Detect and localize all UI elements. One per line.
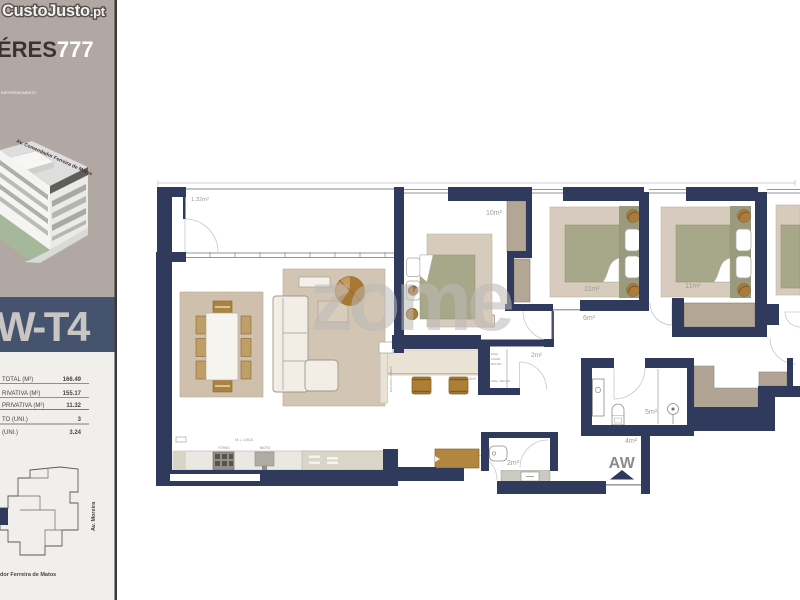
- svg-text:FORNO: FORNO: [218, 446, 230, 450]
- svg-text:155.17: 155.17: [63, 391, 82, 397]
- svg-text:TO (UNI.): TO (UNI.): [2, 417, 28, 423]
- svg-text:11m²: 11m²: [584, 286, 600, 293]
- svg-text:(UNI.): (UNI.): [2, 430, 18, 436]
- svg-text:M. L. LOIÇA: M. L. LOIÇA: [235, 438, 253, 442]
- svg-text:3m²: 3m²: [469, 376, 477, 381]
- svg-text:CustoJusto.pt: CustoJusto.pt: [2, 2, 106, 20]
- svg-text:3.24: 3.24: [69, 430, 81, 436]
- svg-text:MAQ. SECAR: MAQ. SECAR: [491, 379, 511, 383]
- svg-text:PRIVATIVA (M²): PRIVATIVA (M²): [2, 403, 44, 409]
- svg-text:EMPREENDIMENTO: EMPREENDIMENTO: [1, 91, 36, 95]
- svg-text:2m²: 2m²: [507, 460, 520, 467]
- svg-text:TOTAL (M²): TOTAL (M²): [2, 377, 33, 383]
- svg-text:11.32: 11.32: [66, 403, 81, 409]
- svg-text:1.32m²: 1.32m²: [191, 197, 209, 203]
- svg-text:zome: zome: [310, 253, 512, 349]
- svg-text:5m²: 5m²: [645, 409, 658, 416]
- svg-text:Av. Moreira: Av. Moreira: [91, 501, 97, 531]
- svg-text:dor Ferreira de Matos: dor Ferreira de Matos: [0, 572, 56, 578]
- svg-text:10m²: 10m²: [486, 210, 503, 217]
- svg-text:RIVATIVA (M²): RIVATIVA (M²): [2, 391, 40, 397]
- svg-text:2m²: 2m²: [531, 352, 543, 359]
- svg-text:ROUPA: ROUPA: [491, 362, 501, 366]
- svg-text:6m²: 6m²: [583, 315, 596, 322]
- svg-text:ESTANTE LIVROS: ESTANTE LIVROS: [389, 367, 393, 392]
- svg-text:ÉRES777: ÉRES777: [0, 37, 94, 62]
- svg-text:4m²: 4m²: [625, 438, 638, 445]
- svg-text:W-T4: W-T4: [0, 303, 91, 350]
- svg-text:166.49: 166.49: [63, 377, 82, 383]
- svg-text:11m²: 11m²: [685, 283, 701, 290]
- svg-text:MICRO: MICRO: [260, 446, 271, 450]
- svg-text:LAVAR: LAVAR: [491, 357, 501, 361]
- svg-text:MAQ.: MAQ.: [491, 352, 499, 356]
- svg-text:AW: AW: [609, 455, 636, 472]
